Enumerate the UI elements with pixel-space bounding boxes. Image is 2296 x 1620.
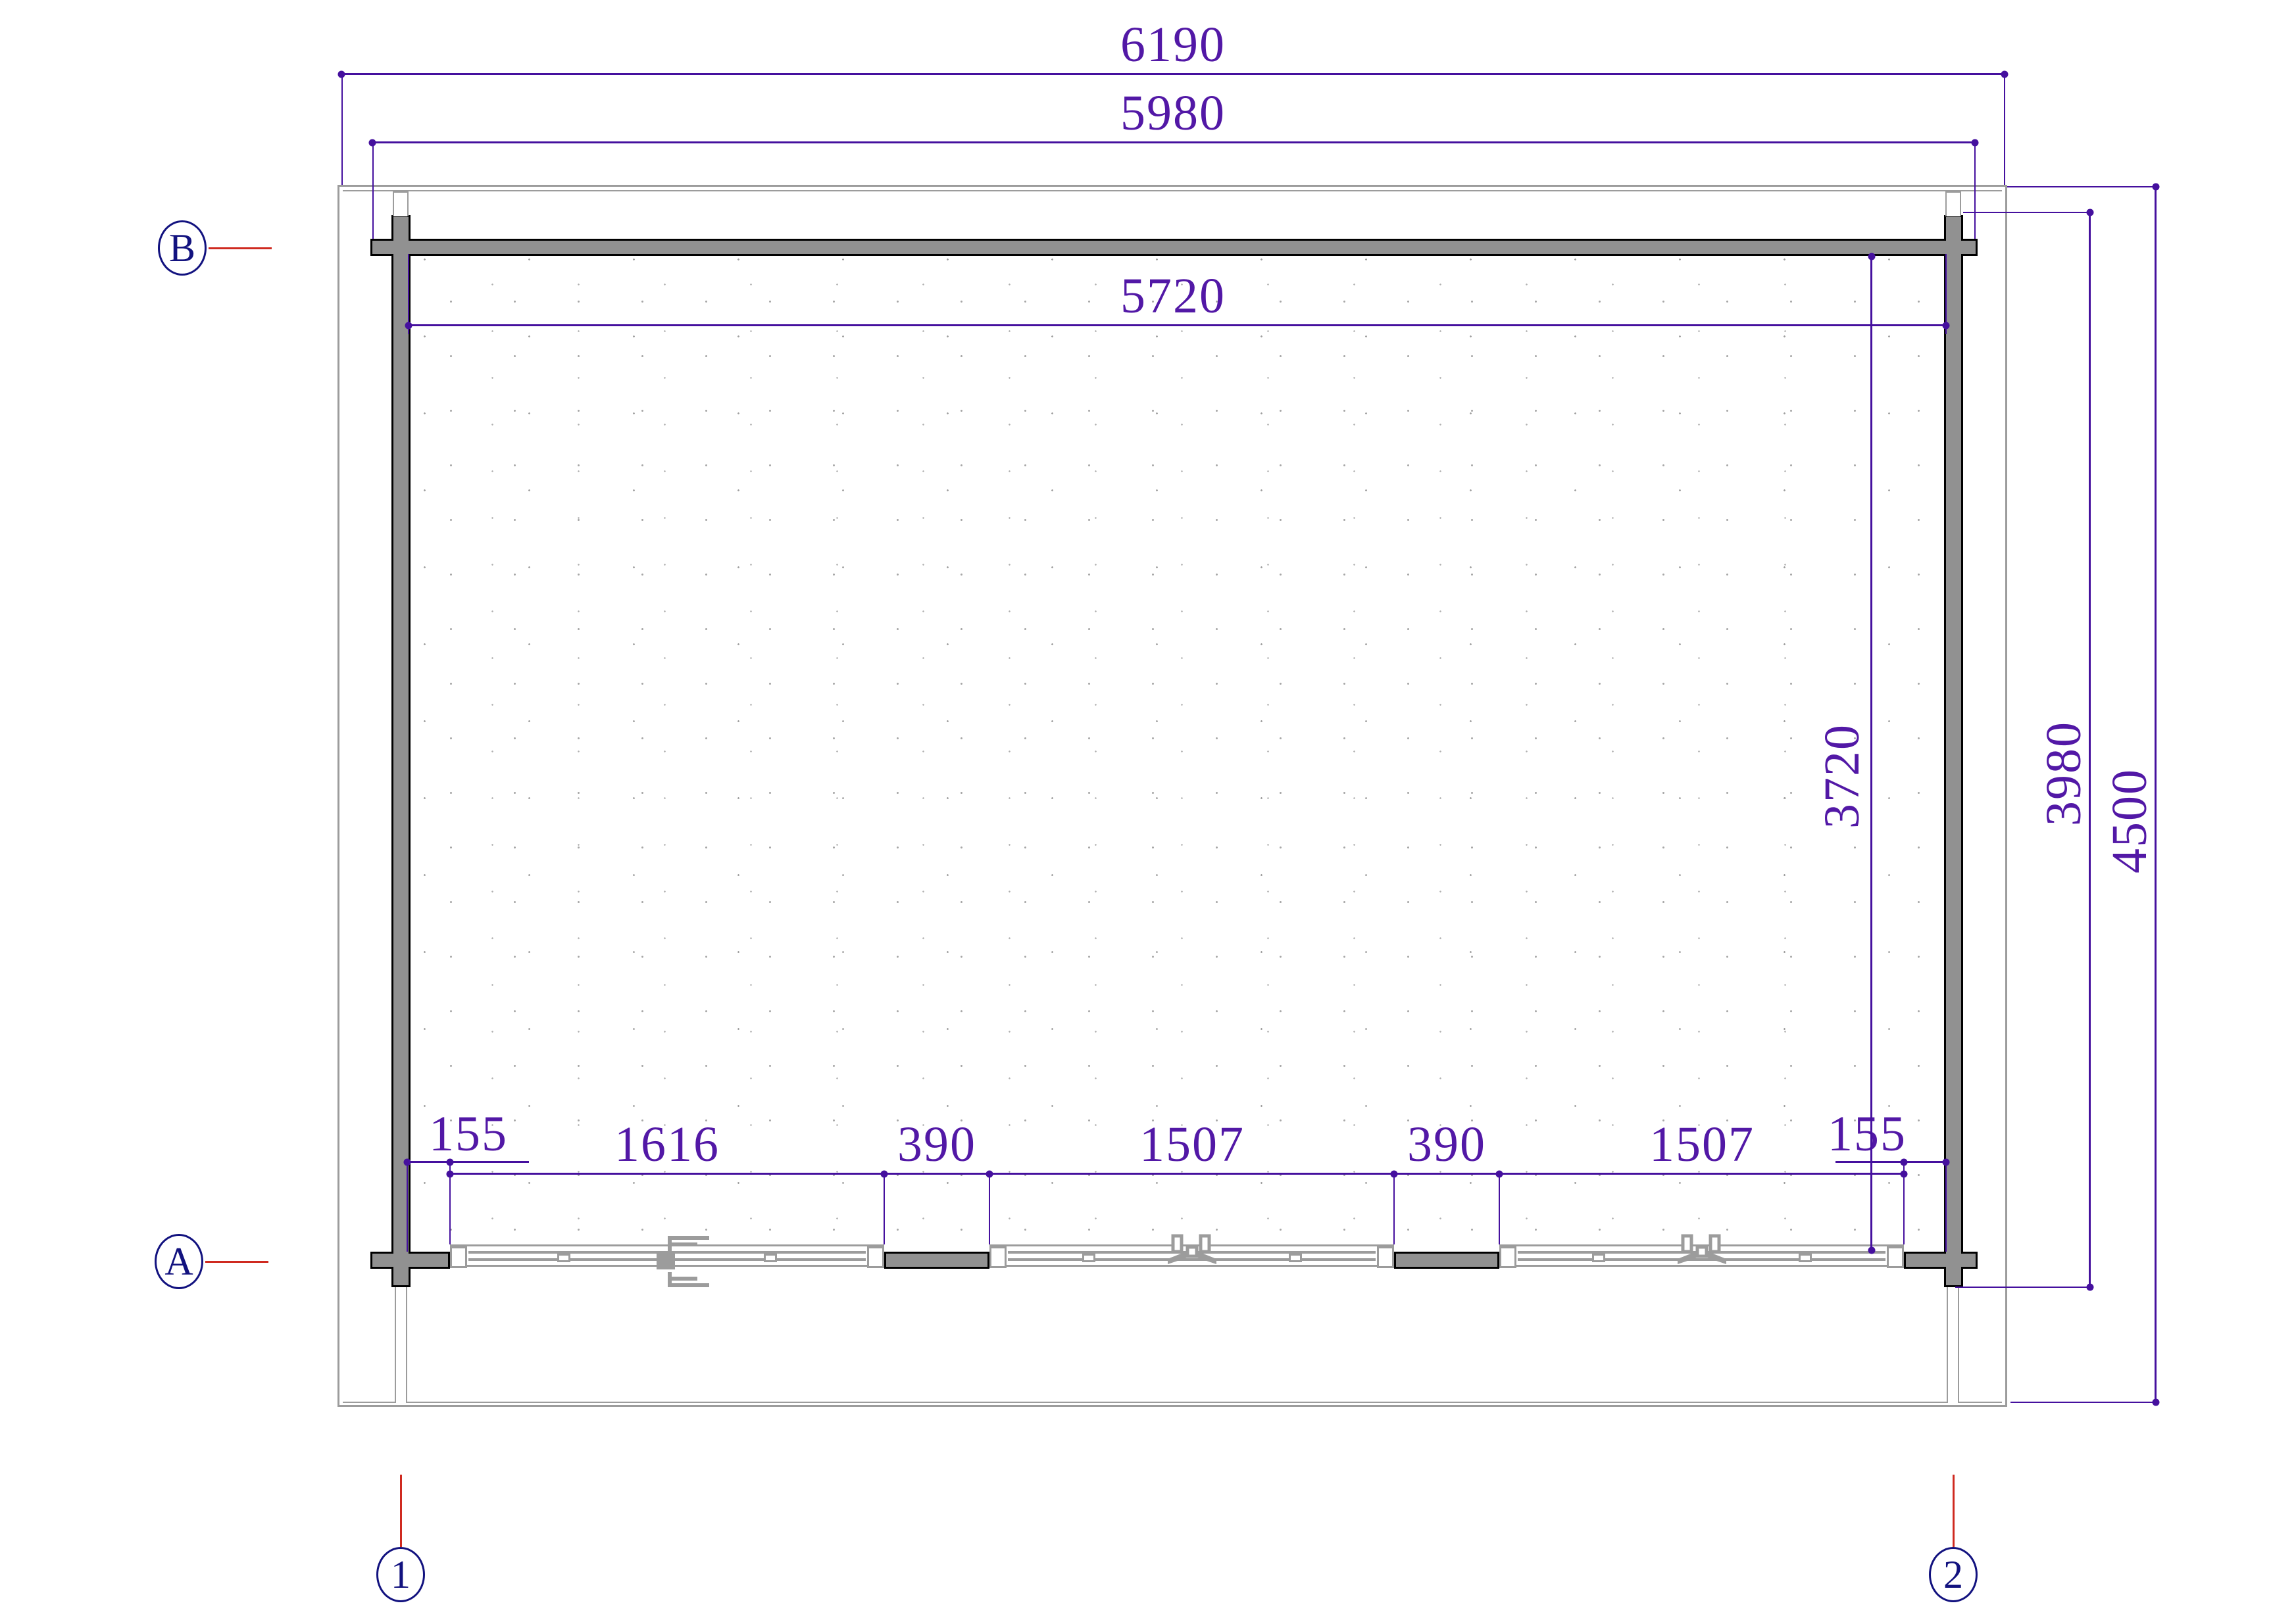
grid-a-leader-line xyxy=(205,1261,268,1263)
dim-3720-dot-top xyxy=(1868,253,1876,260)
dim-5980-ext-right xyxy=(1974,141,1976,239)
dim-5720-line xyxy=(409,324,1946,326)
dim-5980-ext-left xyxy=(372,141,374,239)
dim-5980-label: 5980 xyxy=(1120,88,1226,138)
wall-bottom-seg-right xyxy=(1904,1252,1978,1269)
window1-clip-right xyxy=(764,1254,777,1262)
window1-jamb-left xyxy=(450,1246,467,1268)
dim-6190-ext-left xyxy=(341,73,343,185)
dim-4500-label: 4500 xyxy=(2105,768,2155,873)
log-tail-bottom-right xyxy=(1947,1287,1959,1403)
dim-4500-conn-top xyxy=(2007,186,2155,187)
grid-b-leader-line xyxy=(209,247,272,249)
wall-right xyxy=(1944,215,1963,1287)
window2-jamb-left xyxy=(989,1246,1007,1268)
window3-clip-right xyxy=(1799,1254,1812,1262)
joint-top-right xyxy=(1944,241,1963,254)
window3-jamb-left xyxy=(1499,1246,1516,1268)
log-tail-bottom-left xyxy=(395,1287,407,1403)
ext-155R-a xyxy=(1903,1161,1905,1244)
dim-3980-conn-bottom xyxy=(1955,1287,2089,1288)
wall-left xyxy=(391,215,411,1287)
joint-bottom-right xyxy=(1944,1254,1963,1267)
dim-1507a-label: 1507 xyxy=(1139,1119,1245,1169)
dim-155L-label: 155 xyxy=(429,1109,508,1159)
wall-bottom-pier-2 xyxy=(1394,1252,1499,1269)
dim-chain-line xyxy=(450,1173,1904,1175)
dim-3720-dot-bottom xyxy=(1868,1247,1876,1254)
ext-chain-1504 xyxy=(989,1173,990,1244)
dim-5720-ext-left xyxy=(408,254,409,334)
joint-top-left xyxy=(391,241,411,254)
grid-marker-a: A xyxy=(155,1234,203,1289)
interior-floor xyxy=(411,257,1944,1252)
dim-5720-ext-right xyxy=(1945,254,1947,334)
window2-latch-symbol xyxy=(1162,1234,1222,1268)
dim-6190-ext-right xyxy=(2004,73,2005,185)
wall-top xyxy=(370,239,1978,256)
window1-jamb-right xyxy=(867,1246,884,1268)
dim-390a-label: 390 xyxy=(897,1119,976,1169)
drawing-sheet: 6190 5980 5720 155 1616 390 1507 390 150… xyxy=(0,0,2296,1620)
grid-marker-2: 2 xyxy=(1929,1547,1978,1602)
roof-inner-line-top xyxy=(343,190,2002,191)
grid-marker-2-label: 2 xyxy=(1943,1552,1963,1598)
ext-155L-a xyxy=(407,1161,408,1252)
joint-bottom-left xyxy=(391,1254,411,1267)
window3-clip-left xyxy=(1592,1254,1605,1262)
window3-latch-symbol xyxy=(1672,1234,1732,1268)
grid-marker-1-label: 1 xyxy=(391,1552,411,1598)
dim-6190-line xyxy=(341,73,2005,75)
grid-marker-b-label: B xyxy=(169,226,195,271)
dim-3980-label: 3980 xyxy=(2039,721,2089,826)
ext-155R-b xyxy=(1945,1161,1947,1252)
grid-1-leader-line xyxy=(400,1475,402,1547)
wall-bottom-pier-1 xyxy=(884,1252,989,1269)
dim-155R-label: 155 xyxy=(1828,1109,1907,1159)
dim-5980-line xyxy=(372,141,1975,143)
door-handle-symbol xyxy=(641,1235,713,1288)
ext-chain-2279 xyxy=(1499,1173,1500,1244)
window2-jamb-right xyxy=(1377,1246,1394,1268)
roof-inner-line-bottom xyxy=(343,1402,2002,1403)
dim-4500-conn-bottom xyxy=(2010,1402,2155,1403)
dim-1616-label: 1616 xyxy=(614,1119,720,1169)
dim-1507b-label: 1507 xyxy=(1649,1119,1755,1169)
log-tip-top-right xyxy=(1945,191,1961,216)
dim-3720-line xyxy=(1870,257,1872,1250)
grid-2-leader-line xyxy=(1953,1475,1955,1547)
ext-chain-2119 xyxy=(1393,1173,1395,1244)
ext-chain-1344 xyxy=(884,1173,885,1244)
dim-3980-conn-top xyxy=(1963,212,2089,213)
dim-5720-label: 5720 xyxy=(1120,271,1226,321)
window3-jamb-right xyxy=(1887,1246,1904,1268)
grid-marker-1: 1 xyxy=(376,1547,425,1602)
window2-clip-left xyxy=(1082,1254,1095,1262)
dim-6190-label: 6190 xyxy=(1120,20,1226,70)
dim-3720-label: 3720 xyxy=(1817,724,1867,829)
dim-390b-label: 390 xyxy=(1407,1119,1486,1169)
window2-clip-right xyxy=(1289,1254,1302,1262)
window1-clip-left xyxy=(557,1254,570,1262)
ext-155L-b xyxy=(449,1161,451,1244)
grid-marker-b: B xyxy=(158,220,207,276)
log-tip-top-left xyxy=(393,191,409,216)
grid-marker-a-label: A xyxy=(164,1239,193,1285)
